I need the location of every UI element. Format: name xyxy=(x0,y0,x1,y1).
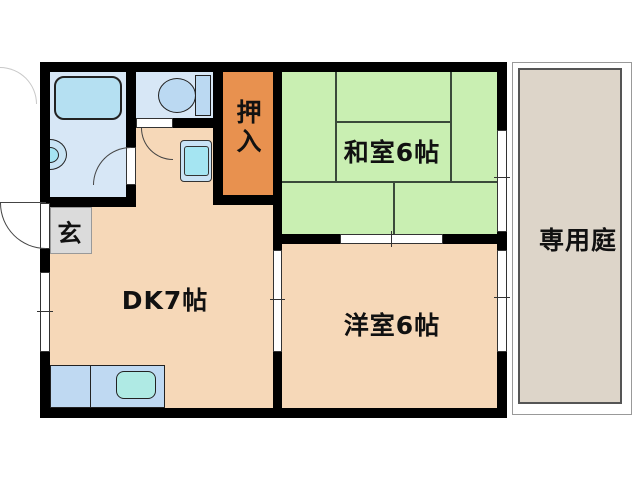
toilet-bowl xyxy=(158,78,196,113)
bathtub xyxy=(54,76,122,120)
window-washitsu-right xyxy=(497,130,507,232)
label-garden: 専用庭 xyxy=(539,221,617,257)
floorplan-canvas: 和室6帖 DK7帖 洋室6帖 押入 玄 専用庭 xyxy=(0,0,640,480)
sliding-door-tick xyxy=(391,231,392,247)
tatami-line xyxy=(393,183,395,234)
tatami-line xyxy=(281,181,497,183)
wall-oshiire-left xyxy=(213,62,223,205)
kitchen-sink xyxy=(116,371,156,399)
wall-right xyxy=(497,352,507,418)
window-tick xyxy=(494,297,510,298)
tatami-line xyxy=(335,72,337,182)
window-dk-left xyxy=(40,272,50,352)
entrance-door-swing-arc xyxy=(0,203,46,249)
wall-right xyxy=(497,62,507,130)
tatami-line xyxy=(450,72,452,182)
washing-machine xyxy=(184,146,209,176)
wall-left xyxy=(40,352,50,418)
wall-washitsu-bottom xyxy=(443,234,507,244)
window-tick xyxy=(494,177,510,178)
wall-oshiire-bottom xyxy=(213,195,281,205)
wall-washitsu-bottom xyxy=(273,234,340,244)
wall-left xyxy=(40,249,50,272)
window-tick xyxy=(37,311,53,312)
sliding-door-dk-yoshitsu xyxy=(273,250,282,352)
toilet-door-leaf xyxy=(136,118,173,128)
toilet-tank xyxy=(195,75,211,116)
label-washitsu: 和室6帖 xyxy=(344,133,440,169)
sliding-door-tick xyxy=(270,299,285,300)
wall-center-vertical xyxy=(273,62,282,250)
kitchen-counter-divider xyxy=(90,365,91,408)
wall-center-vertical xyxy=(273,352,282,418)
neighbor-door-swing-arc xyxy=(0,67,37,104)
wall-bathroom-bottom xyxy=(40,197,136,207)
tatami-line xyxy=(335,121,452,123)
label-genkan: 玄 xyxy=(58,214,83,249)
label-oshiire: 押入 xyxy=(229,99,265,157)
wall-bathroom-right xyxy=(126,62,136,147)
wall-left xyxy=(40,62,50,203)
label-yoshitsu: 洋室6帖 xyxy=(344,306,440,342)
window-yoshitsu-right xyxy=(497,250,507,352)
label-dk: DK7帖 xyxy=(122,281,209,317)
